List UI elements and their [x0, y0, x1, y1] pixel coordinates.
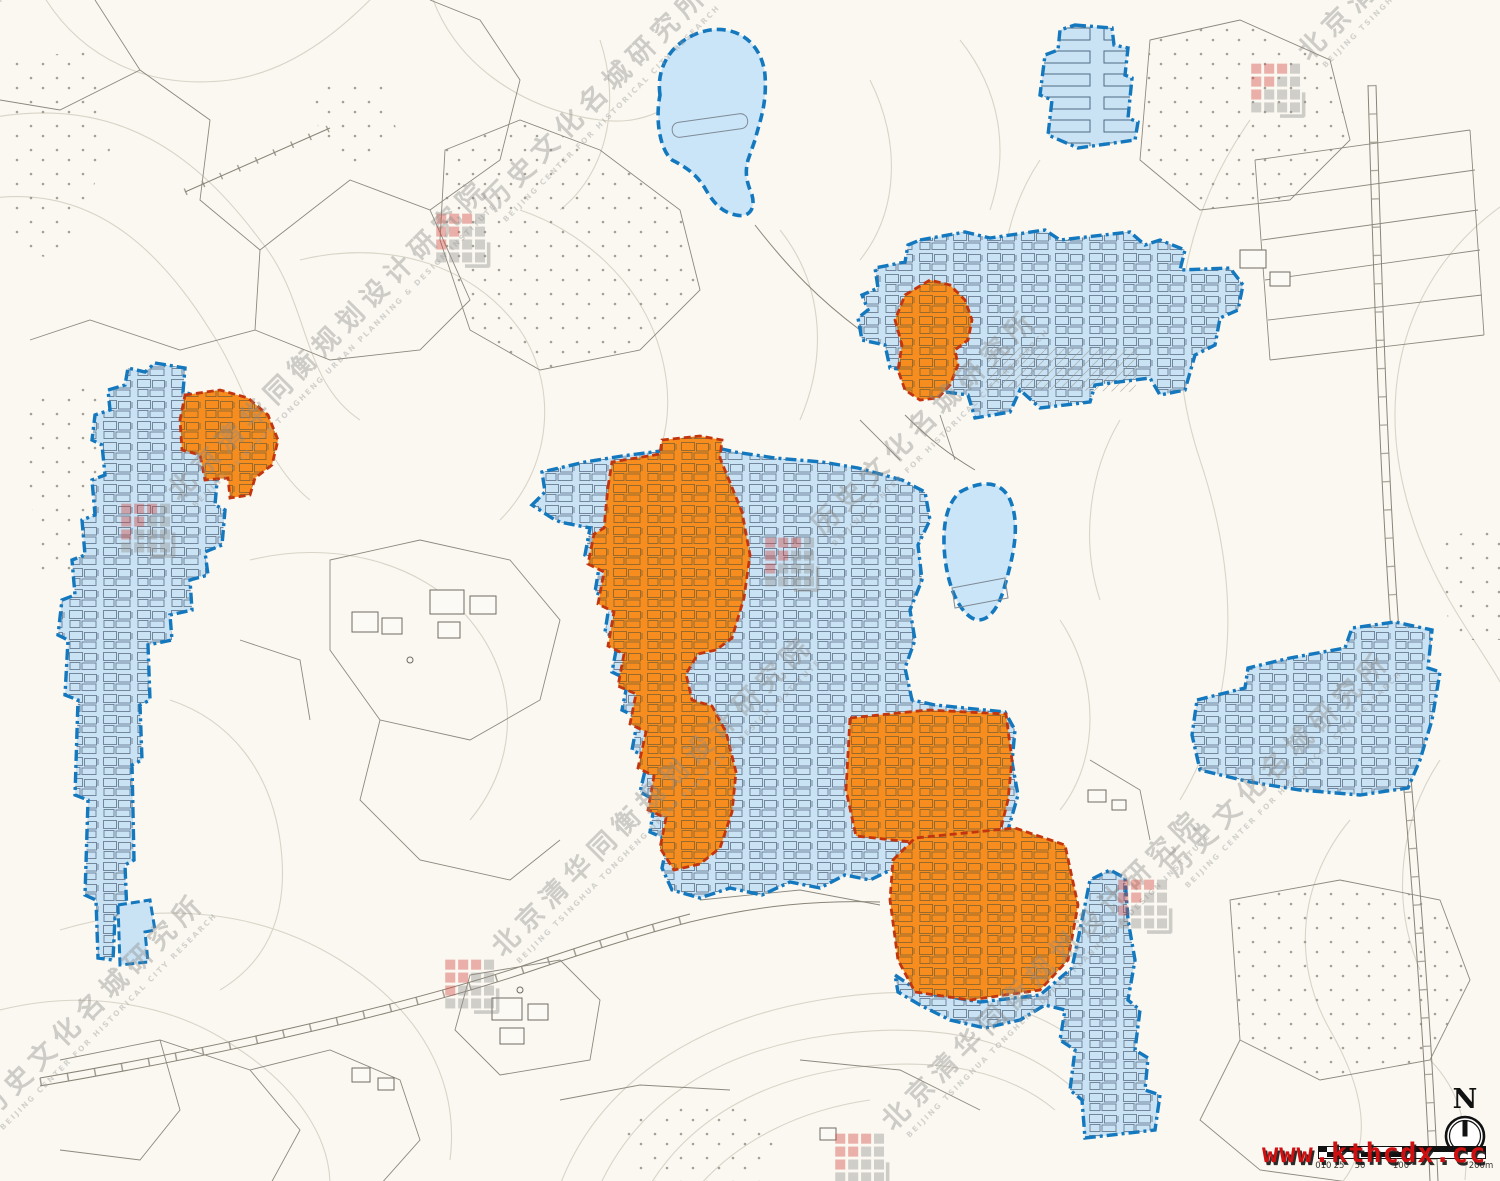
lake	[658, 29, 765, 215]
pond	[944, 484, 1015, 620]
core-area-east-block	[846, 710, 1012, 844]
map-stage: 历史文化名城研究所 BEIJING CENTER FOR HISTORICAL …	[0, 0, 1500, 1181]
protection-zone-upper-village	[858, 230, 1243, 418]
protection-zone-west-tail	[118, 900, 155, 965]
protection-zone-northeast	[1040, 25, 1138, 148]
core-area-south	[890, 828, 1078, 1000]
protection-zone-south	[890, 828, 1160, 1138]
planning-map-canvas	[0, 0, 1500, 1181]
protection-zone-central	[532, 436, 1018, 898]
site-url-watermark: www.kthcdx.cc	[1262, 1138, 1486, 1169]
protection-zone-east	[1192, 622, 1440, 795]
north-label: N	[1439, 1086, 1491, 1113]
terrace-hatch	[985, 345, 1140, 392]
